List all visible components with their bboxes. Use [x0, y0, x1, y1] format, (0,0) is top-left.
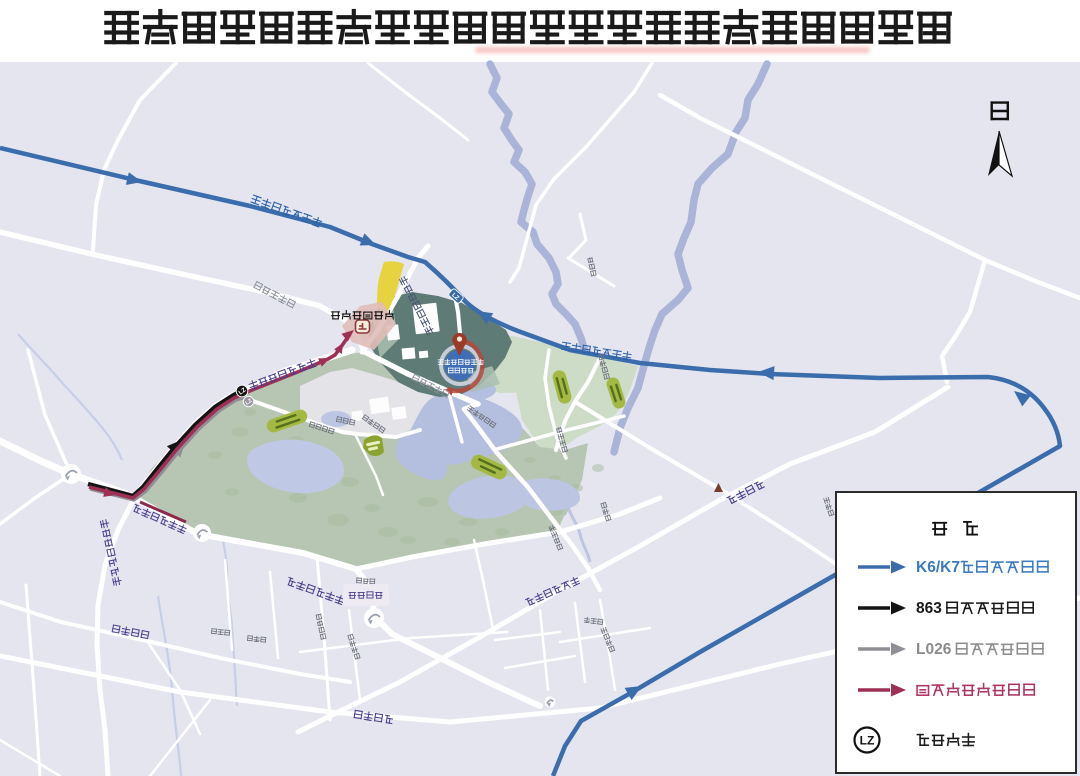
svg-text:LZ: LZ — [860, 734, 875, 748]
svg-text:863: 863 — [916, 600, 942, 617]
svg-text:K6/K7: K6/K7 — [916, 559, 960, 576]
svg-text:L026: L026 — [916, 641, 952, 658]
